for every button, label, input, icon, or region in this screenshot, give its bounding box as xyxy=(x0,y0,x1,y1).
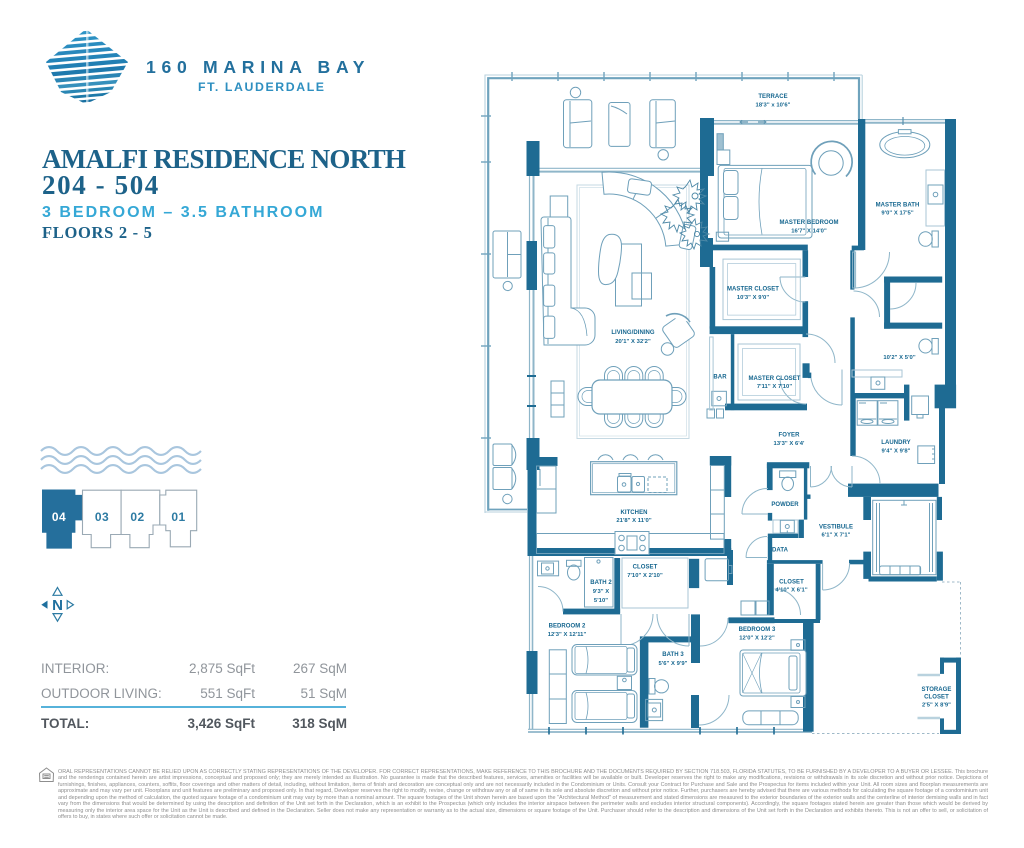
svg-text:BEDROOM 2: BEDROOM 2 xyxy=(549,624,586,630)
svg-text:CLOSET: CLOSET xyxy=(779,580,804,586)
svg-text:10'2" X 5'0": 10'2" X 5'0" xyxy=(883,355,915,361)
svg-text:DATA: DATA xyxy=(772,548,789,554)
svg-text:MASTER CLOSET: MASTER CLOSET xyxy=(727,287,779,293)
svg-text:BATH 3: BATH 3 xyxy=(662,652,684,658)
svg-text:7'11" X 7'10": 7'11" X 7'10" xyxy=(757,384,792,390)
svg-text:N: N xyxy=(52,597,63,614)
svg-text:BAR: BAR xyxy=(713,375,727,381)
svg-text:5'6" X 9'9": 5'6" X 9'9" xyxy=(658,661,687,667)
svg-text:4'10" X 6'1": 4'10" X 6'1" xyxy=(775,588,807,594)
svg-text:21'8" X 11'0": 21'8" X 11'0" xyxy=(616,518,651,524)
svg-text:12'3" X 12'11": 12'3" X 12'11" xyxy=(548,632,587,638)
svg-text:MASTER BEDROOM: MASTER BEDROOM xyxy=(779,220,838,226)
svg-text:9'0" X 17'5": 9'0" X 17'5" xyxy=(881,211,913,217)
svg-text:2'5" X 8'9": 2'5" X 8'9" xyxy=(922,702,951,708)
svg-text:18'3" x 10'6": 18'3" x 10'6" xyxy=(756,103,791,109)
svg-text:9'4" X 9'8": 9'4" X 9'8" xyxy=(881,449,910,455)
svg-text:02: 02 xyxy=(130,510,144,524)
svg-text:01: 01 xyxy=(171,510,185,524)
svg-text:16'7" X 14'0": 16'7" X 14'0" xyxy=(791,228,827,234)
svg-text:STORAGE: STORAGE xyxy=(922,687,952,693)
svg-text:9'3" X: 9'3" X xyxy=(593,589,610,595)
svg-text:MASTER CLOSET: MASTER CLOSET xyxy=(749,376,801,382)
svg-text:CLOSET: CLOSET xyxy=(633,565,658,571)
svg-text:LIVING/DINING: LIVING/DINING xyxy=(611,330,655,336)
svg-text:FOYER: FOYER xyxy=(779,433,801,439)
svg-text:MASTER BATH: MASTER BATH xyxy=(876,203,920,209)
svg-text:BATH 2: BATH 2 xyxy=(590,580,612,586)
svg-text:5'10": 5'10" xyxy=(594,598,608,604)
svg-text:12'0" X 12'2": 12'0" X 12'2" xyxy=(739,636,775,642)
svg-text:TERRACE: TERRACE xyxy=(758,94,787,100)
svg-text:03: 03 xyxy=(95,510,109,524)
svg-text:BEDROOM 3: BEDROOM 3 xyxy=(739,627,776,633)
svg-text:POWDER: POWDER xyxy=(771,502,799,508)
svg-text:VESTIBULE: VESTIBULE xyxy=(819,525,853,531)
svg-text:6'1" X 7'1": 6'1" X 7'1" xyxy=(821,533,850,539)
svg-text:20'1" X 32'2": 20'1" X 32'2" xyxy=(615,339,651,345)
svg-text:04: 04 xyxy=(52,510,66,524)
svg-text:7'10" X 2'10": 7'10" X 2'10" xyxy=(627,573,663,579)
svg-text:10'3" X 9'0": 10'3" X 9'0" xyxy=(737,295,769,301)
svg-text:CLOSET: CLOSET xyxy=(924,694,949,700)
svg-text:13'3" X 6'4': 13'3" X 6'4' xyxy=(774,441,805,447)
svg-text:KITCHEN: KITCHEN xyxy=(620,510,647,516)
svg-text:LAUNDRY: LAUNDRY xyxy=(881,440,910,446)
